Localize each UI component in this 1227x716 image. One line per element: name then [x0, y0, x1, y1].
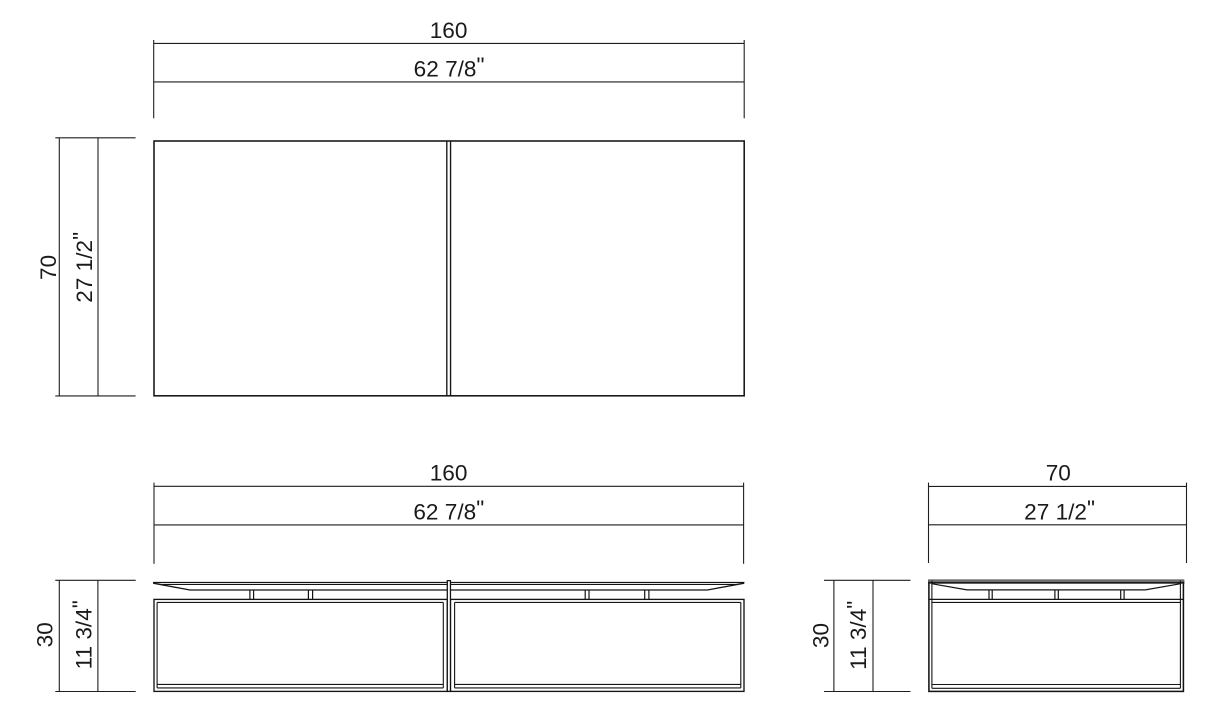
svg-text:62 7/8": 62 7/8" [414, 53, 485, 82]
svg-text:30: 30 [808, 623, 833, 648]
svg-text:11 3/4": 11 3/4" [843, 601, 872, 670]
svg-text:70: 70 [1046, 460, 1071, 485]
svg-text:27 1/2": 27 1/2" [68, 232, 97, 303]
svg-text:160: 160 [430, 461, 468, 486]
svg-text:11 3/4": 11 3/4" [68, 600, 97, 669]
svg-text:30: 30 [32, 622, 57, 647]
svg-text:27 1/2": 27 1/2" [1024, 496, 1095, 525]
svg-text:70: 70 [36, 255, 61, 280]
svg-text:160: 160 [430, 18, 468, 43]
svg-text:62 7/8": 62 7/8" [413, 496, 484, 525]
